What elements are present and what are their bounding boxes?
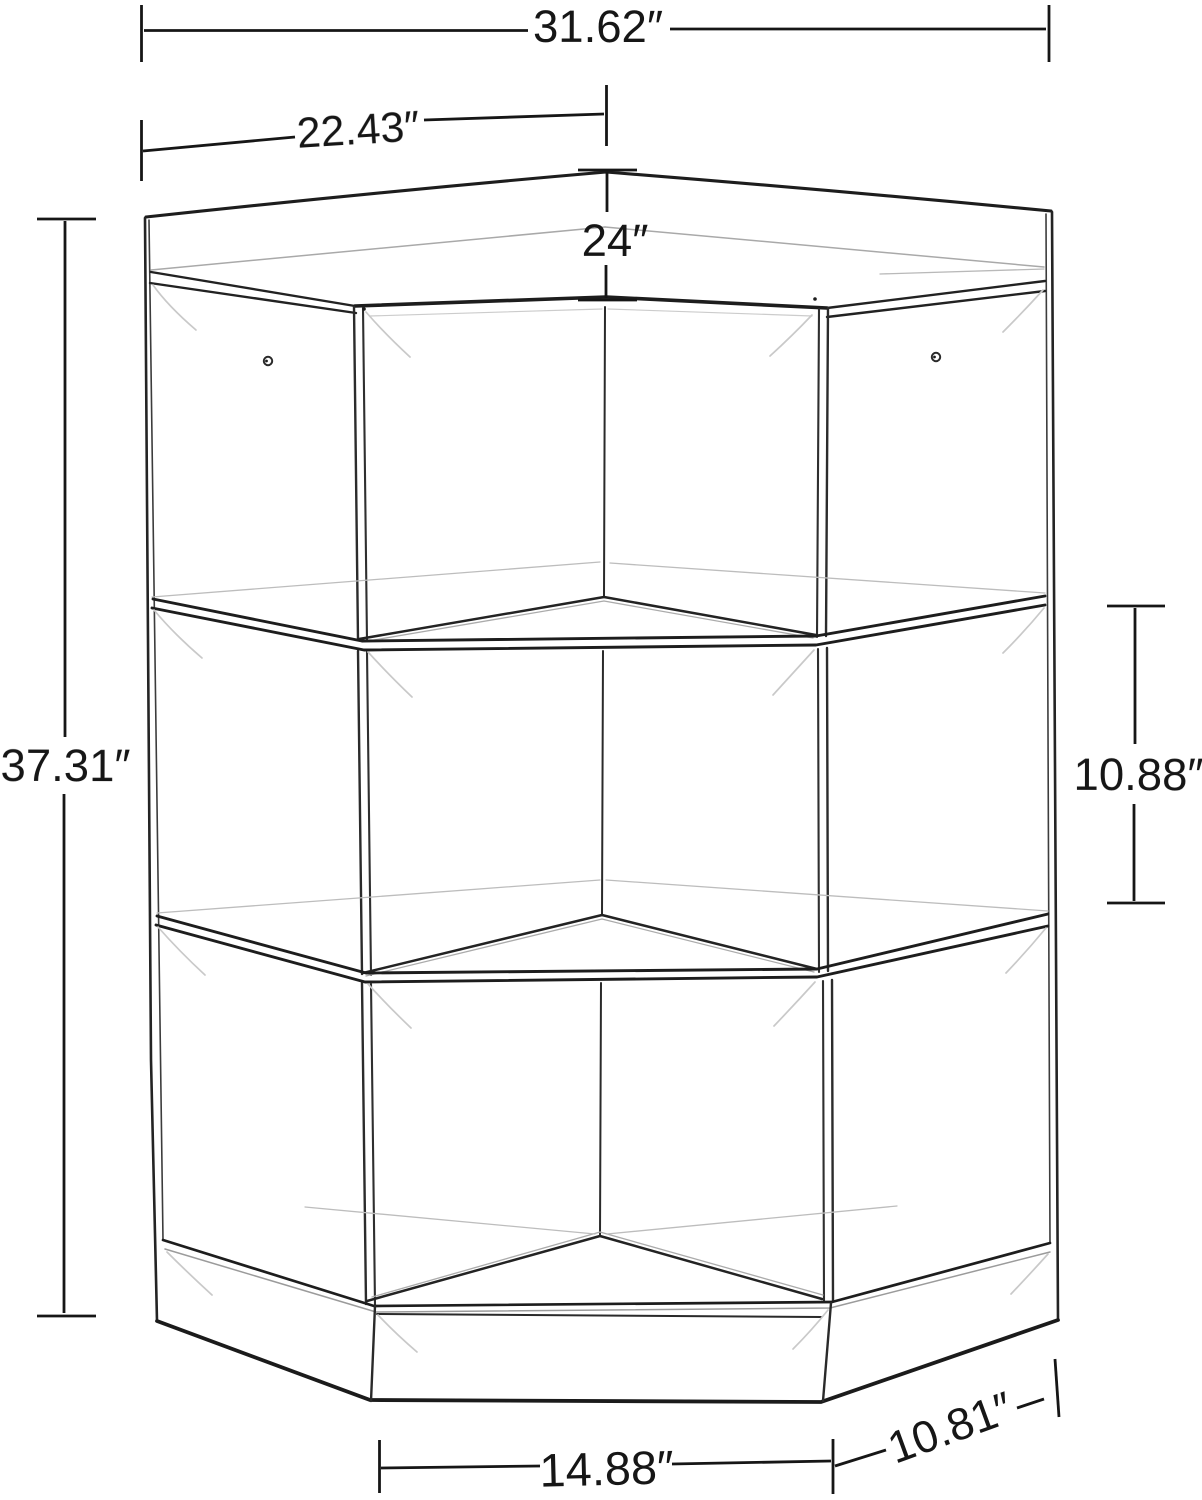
svg-text:10.88″: 10.88″ <box>1073 749 1202 800</box>
svg-text:22.43″: 22.43″ <box>295 102 421 158</box>
svg-text:14.88″: 14.88″ <box>539 1440 675 1496</box>
svg-text:24″: 24″ <box>582 215 649 266</box>
svg-text:31.62″: 31.62″ <box>533 1 663 52</box>
svg-text:37.31″: 37.31″ <box>0 740 130 791</box>
svg-text:10.81″: 10.81″ <box>881 1382 1019 1474</box>
